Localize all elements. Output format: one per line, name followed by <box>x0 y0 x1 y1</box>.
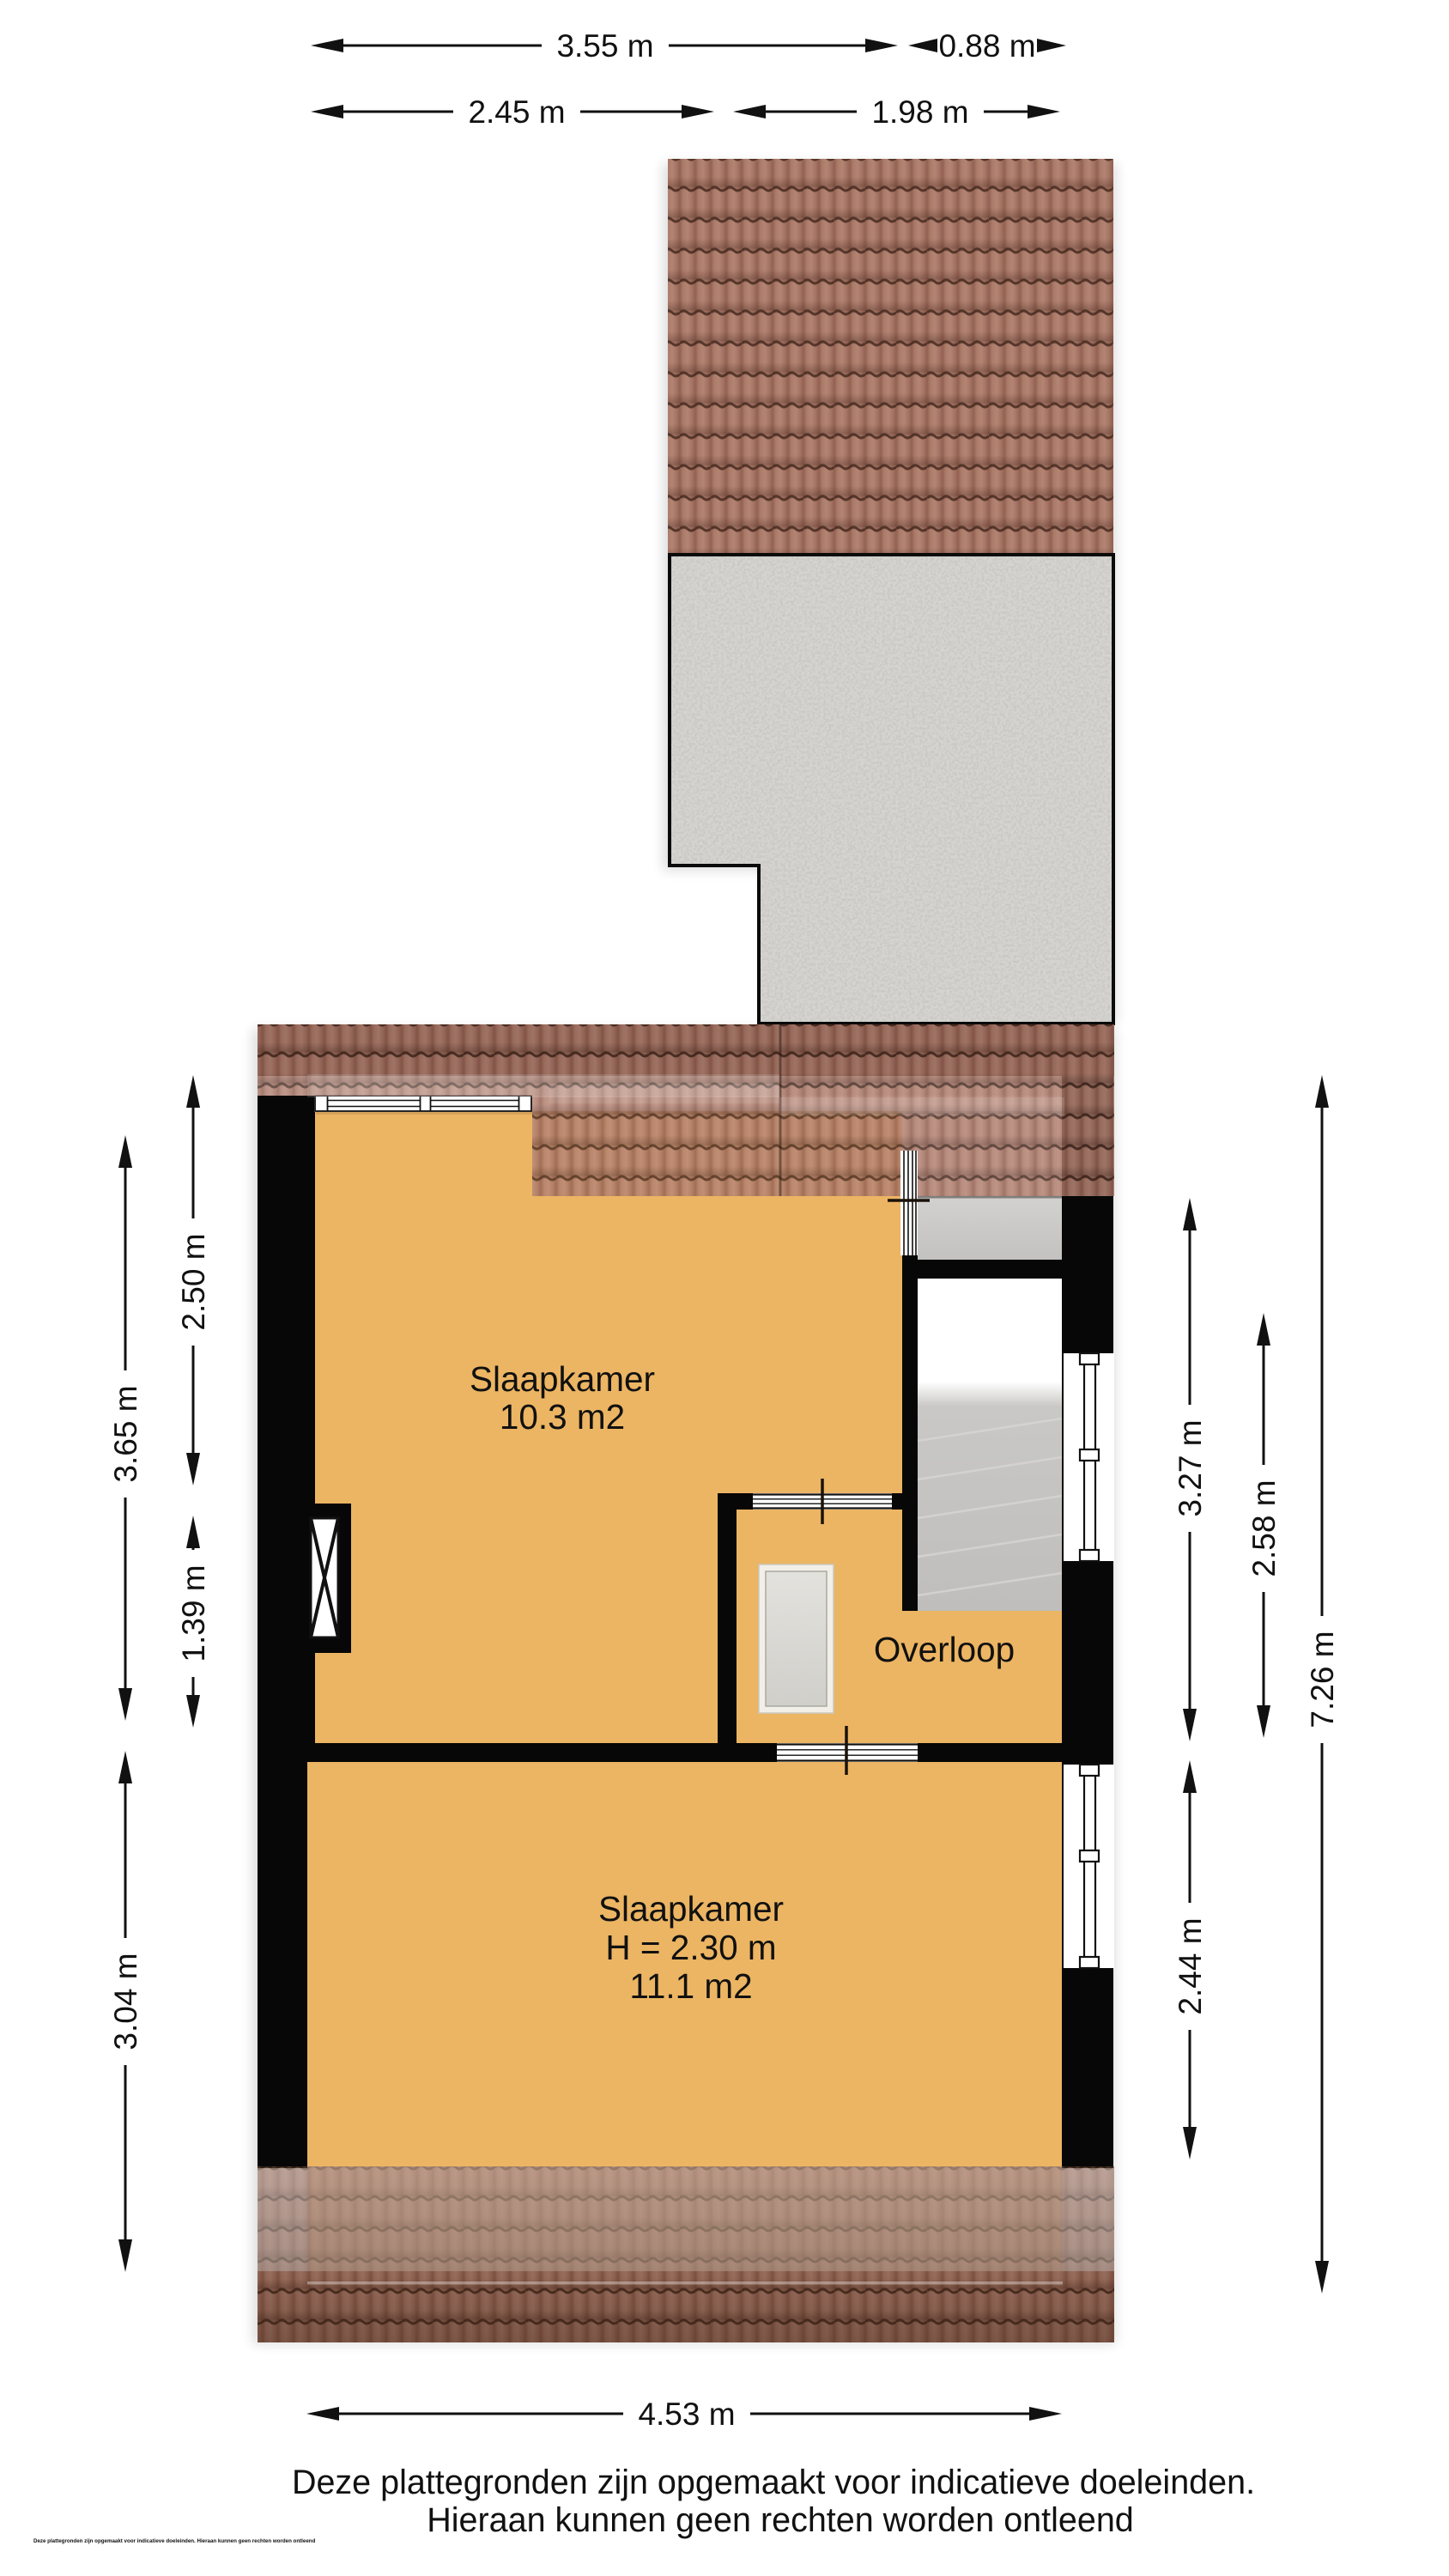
svg-text:3.55 m: 3.55 m <box>556 28 653 64</box>
svg-text:Hieraan kunnen geen rechten wo: Hieraan kunnen geen rechten worden ontle… <box>427 2501 1134 2539</box>
svg-text:11.1 m2: 11.1 m2 <box>629 1966 752 2006</box>
svg-text:Deze plattegronden zijn opgema: Deze plattegronden zijn opgemaakt voor i… <box>292 2464 1255 2501</box>
svg-text:Overloop: Overloop <box>874 1630 1015 1669</box>
svg-text:3.27 m: 3.27 m <box>1173 1419 1208 1516</box>
svg-text:Deze plattegronden zijn opgema: Deze plattegronden zijn opgemaakt voor i… <box>33 2538 316 2544</box>
svg-text:1.98 m: 1.98 m <box>871 94 968 130</box>
svg-text:3.65 m: 3.65 m <box>108 1385 143 1482</box>
svg-text:2.50 m: 2.50 m <box>176 1233 211 1330</box>
svg-text:0.88 m: 0.88 m <box>938 28 1035 64</box>
svg-text:2.45 m: 2.45 m <box>468 94 565 130</box>
svg-text:Slaapkamer: Slaapkamer <box>470 1359 655 1399</box>
svg-text:1.39 m: 1.39 m <box>176 1564 211 1662</box>
svg-text:2.58 m: 2.58 m <box>1246 1479 1282 1577</box>
svg-text:2.44 m: 2.44 m <box>1173 1917 1208 2014</box>
svg-text:7.26 m: 7.26 m <box>1305 1631 1340 1728</box>
svg-text:10.3 m2: 10.3 m2 <box>500 1397 625 1437</box>
svg-text:H = 2.30 m: H = 2.30 m <box>605 1928 776 1967</box>
svg-text:Slaapkamer: Slaapkamer <box>598 1889 784 1929</box>
svg-text:4.53 m: 4.53 m <box>638 2397 735 2432</box>
svg-text:3.04 m: 3.04 m <box>108 1953 143 2050</box>
